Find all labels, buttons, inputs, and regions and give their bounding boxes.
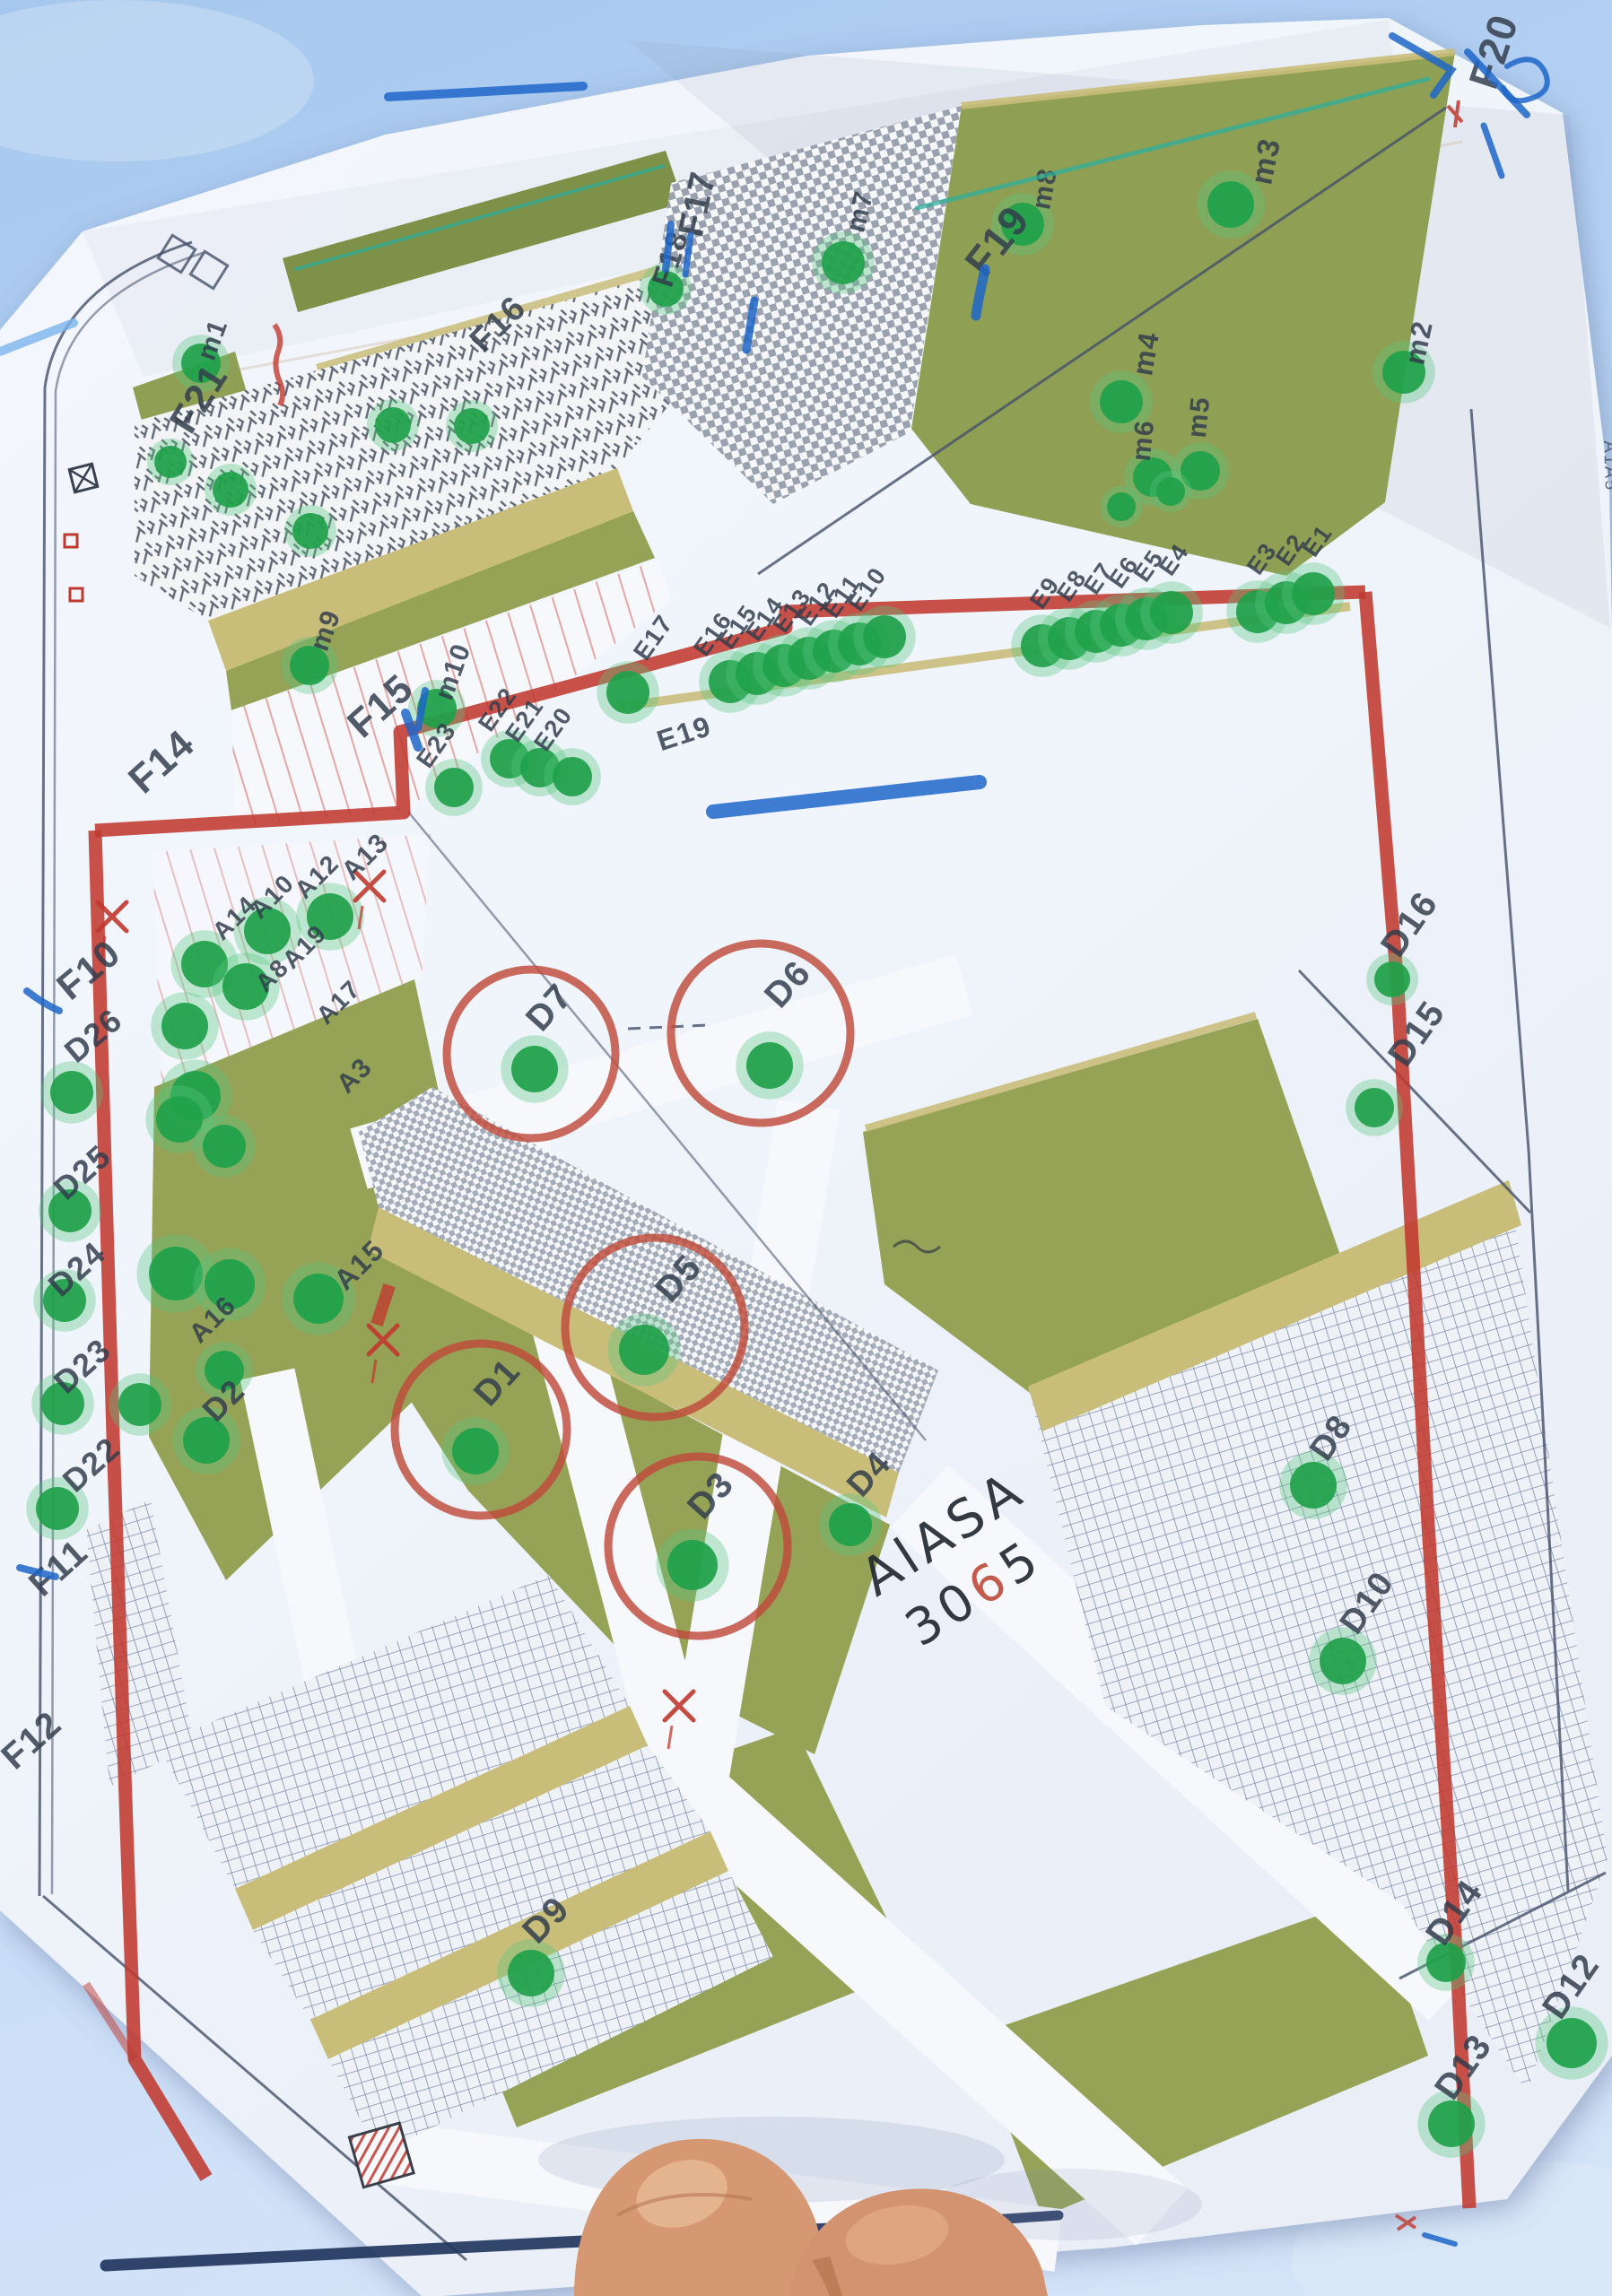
tree-dot (1290, 1462, 1337, 1509)
map-label-m6: m6 (1127, 418, 1161, 463)
tree-dot (829, 1503, 872, 1546)
tree-dot (511, 1046, 558, 1092)
tree-dot (746, 1042, 793, 1089)
tree-dot (1292, 572, 1335, 615)
tree-dot (434, 768, 474, 807)
tree-dot (375, 407, 411, 443)
tree-dot (606, 671, 649, 714)
tree-dot (203, 1125, 246, 1168)
site-plan-photo: F20F21F17F18F16F19F15F14F10F11F12m1m2m3m… (0, 0, 1612, 2296)
tree-dot (1207, 181, 1254, 228)
tree-dot (1156, 477, 1185, 506)
tree-dot (553, 757, 592, 796)
tree-dot (863, 615, 906, 658)
tree-dot (1547, 2018, 1597, 2068)
tree-dot (1374, 961, 1410, 997)
tree-dot (36, 1487, 79, 1530)
tree-dot (50, 1071, 93, 1114)
tree-dot (1320, 1638, 1366, 1684)
tree-dot (508, 1950, 554, 1996)
tree-dot (454, 408, 490, 444)
tree-dot (1150, 591, 1193, 634)
tree-dot (292, 513, 328, 549)
tree-dot (452, 1428, 499, 1474)
tree-dot (822, 241, 865, 284)
tree-dot (154, 446, 187, 478)
tree-dot (667, 1540, 718, 1590)
tree-dot (1100, 380, 1143, 423)
map-label-m5: m5 (1182, 395, 1216, 439)
edge-label: A1A5 (1599, 440, 1612, 492)
tree-dot (1428, 2100, 1475, 2147)
tree-dot (118, 1383, 161, 1426)
tree-dot (1355, 1088, 1394, 1127)
tree-dot (619, 1325, 669, 1375)
tree-dot (1107, 492, 1136, 521)
tree-dot (161, 1003, 208, 1049)
tree-dot (213, 472, 248, 508)
photo-of-site-plan: { "colors": { "sky_top": "#a7c8ee", "sky… (0, 0, 1612, 2296)
